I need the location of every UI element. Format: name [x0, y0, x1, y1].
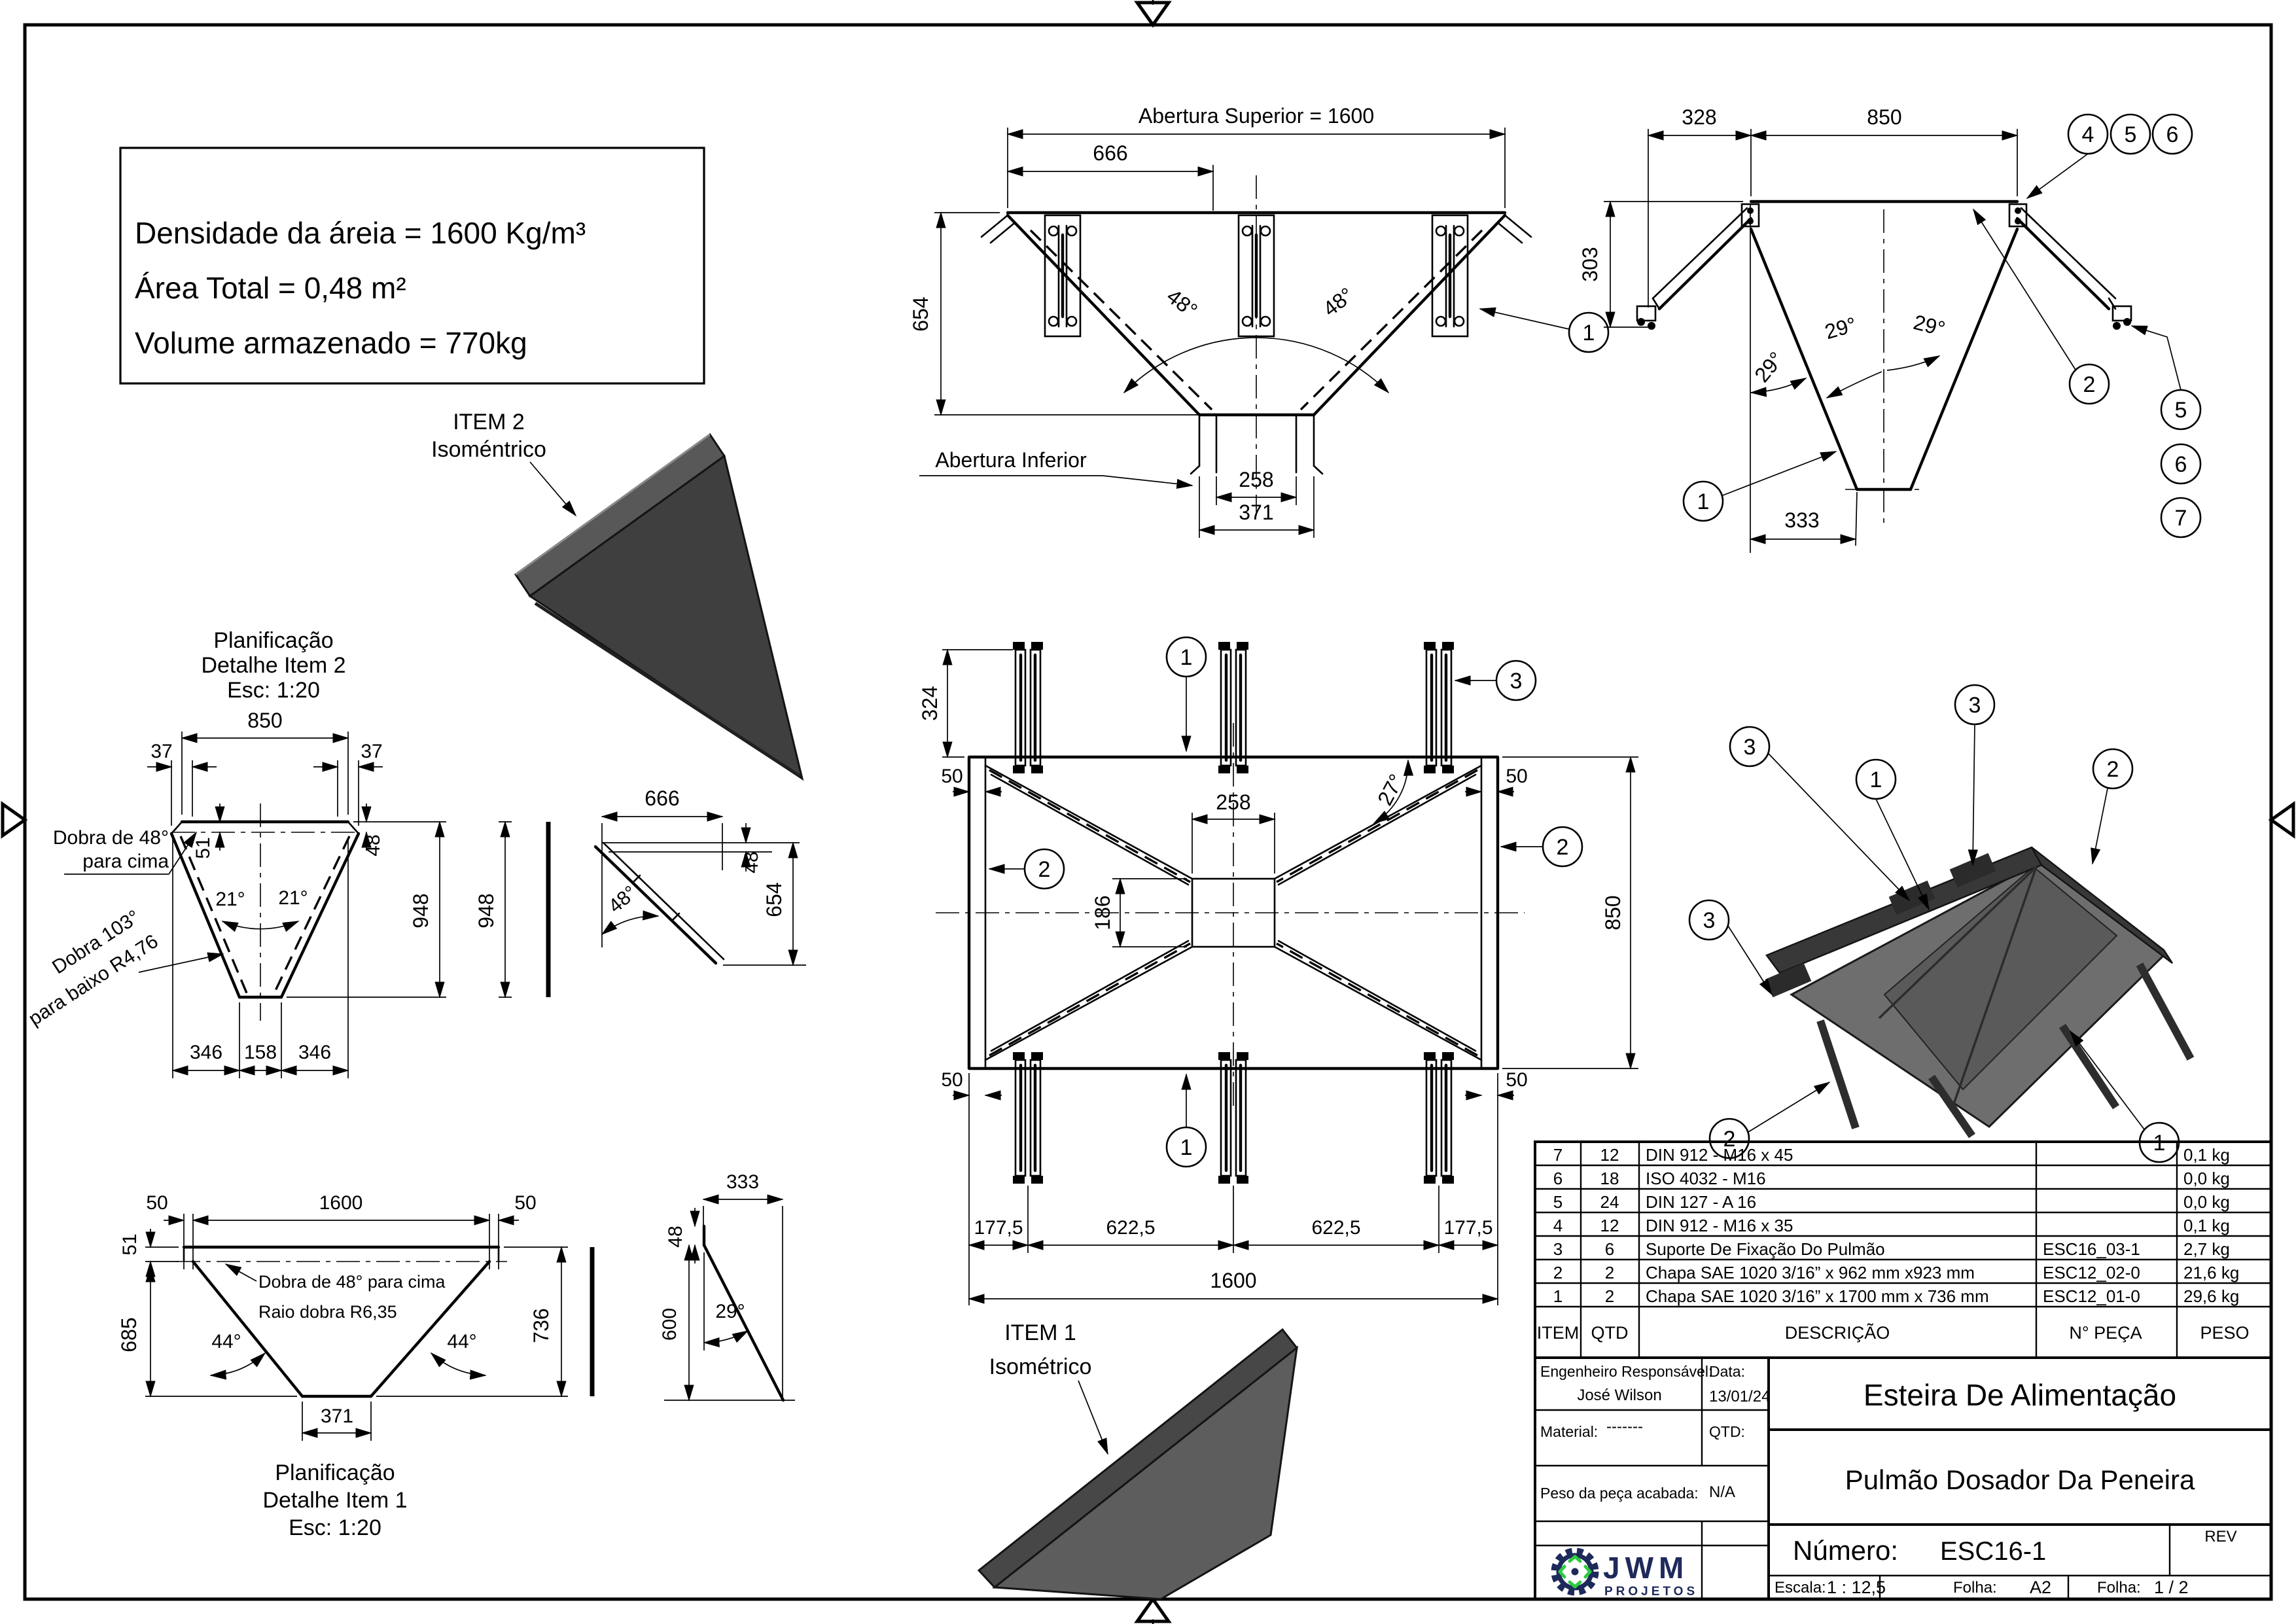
bom-r0-qtd: 12 [1600, 1145, 1619, 1165]
svg-text:2: 2 [2083, 372, 2096, 397]
flat1-dim-50r: 50 [514, 1192, 536, 1214]
svg-text:4: 4 [2082, 122, 2094, 147]
flat1-dim-1600: 1600 [319, 1192, 363, 1214]
bom-r6-item: 1 [1553, 1286, 1563, 1306]
drawing-sheet: Densidade da áreia = 1600 Kg/m³ Área Tot… [0, 0, 2296, 1624]
bom-r5-num: ESC12_02-0 [2043, 1263, 2140, 1282]
label-abertura-inferior: Abertura Inferior [935, 448, 1087, 472]
side-view: 328 850 303 29° 29° 29° 4 5 6 1 2 5 6 7 … [1578, 105, 2200, 553]
iso2-label-2: Isoméntrico [431, 437, 546, 462]
balloon-plan-left-2: 2 [989, 849, 1064, 889]
balloon-side-5: 5 [2111, 115, 2150, 154]
tb-scale-label: Escala: [1775, 1579, 1826, 1597]
flat1-dim-371: 371 [321, 1405, 353, 1427]
tb-weight-value: N/A [1709, 1483, 1735, 1501]
info-box: Densidade da áreia = 1600 Kg/m³ Área Tot… [120, 148, 704, 383]
bom-r3-desc: DIN 912 - M16 x 35 [1646, 1216, 1793, 1235]
angle-48-right: 48° [1318, 283, 1358, 321]
bom-r6-desc: Chapa SAE 1020 3/16” x 1700 mm x 736 mm [1646, 1286, 1989, 1306]
plan-view: 324 50 50 50 50 258 186 27° 850 177,5 62… [918, 637, 1638, 1305]
flat2-dim-37l: 37 [150, 741, 172, 762]
balloon-side-4: 4 [2027, 115, 2108, 198]
iso1-label-2: Isométrico [989, 1354, 1092, 1379]
flat1-note-2: Raio dobra R6,35 [258, 1302, 397, 1322]
dim-850-plan: 850 [1601, 895, 1625, 930]
prof1-dim-600: 600 [659, 1308, 680, 1341]
logo-name: JWM [1603, 1551, 1689, 1585]
bom-r0-desc: DIN 912 - M16 x 45 [1646, 1145, 1793, 1165]
tb-project-title: Esteira De Alimentação [1863, 1378, 2176, 1412]
bom-r2-item: 5 [1553, 1192, 1563, 1212]
bom-r1-desc: ISO 4032 - M16 [1646, 1169, 1766, 1188]
dim-666: 666 [1093, 141, 1127, 165]
tb-qtd-label: QTD: [1709, 1423, 1745, 1440]
tb-sheet-num-value: 1 / 2 [2154, 1578, 2189, 1597]
svg-text:5: 5 [2175, 398, 2187, 423]
bom-r1-item: 6 [1553, 1169, 1563, 1188]
prof1-dim-48: 48 [665, 1226, 686, 1247]
dim-1600-plan: 1600 [1210, 1269, 1256, 1292]
bom-r4-item: 3 [1553, 1239, 1563, 1259]
flat1-dim-736: 736 [529, 1308, 553, 1343]
tb-sheet-size-value: A2 [2030, 1578, 2051, 1597]
flat1-title-3: Esc: 1:20 [289, 1515, 381, 1540]
profile-item1: 333 48 600 29° [659, 1171, 795, 1400]
bom-r4-peso: 2,7 kg [2183, 1239, 2230, 1259]
flat2-dim-346r: 346 [298, 1042, 331, 1063]
tb-date-label: Data: [1709, 1363, 1745, 1380]
flat1-title-2: Detalhe Item 1 [262, 1488, 407, 1513]
bom-r5-item: 2 [1553, 1263, 1563, 1282]
flat2-title-3: Esc: 1:20 [227, 678, 320, 703]
svg-text:6: 6 [2175, 452, 2187, 477]
svg-text:2: 2 [2107, 757, 2119, 782]
bom-r4-num: ESC16_03-1 [2043, 1239, 2140, 1259]
bom-r4-qtd: 6 [1605, 1239, 1614, 1259]
iso1-label-1: ITEM 1 [1004, 1320, 1076, 1345]
tb-material-label: Material: [1540, 1423, 1598, 1440]
dim-186: 186 [1091, 895, 1114, 930]
svg-text:1: 1 [1583, 321, 1595, 345]
info-area: Área Total = 0,48 m² [135, 271, 406, 305]
bom-r1-qtd: 18 [1600, 1169, 1619, 1188]
flat2-note-up-2: para cima [82, 851, 169, 872]
flat2-note-up-1: Dobra de 48° [53, 827, 169, 849]
flat1-dim-51: 51 [119, 1233, 141, 1255]
svg-text:7: 7 [2175, 506, 2187, 531]
bom-r0-item: 7 [1553, 1145, 1563, 1165]
balloon-chain-7: 7 [2161, 498, 2200, 537]
prof2-dim-666: 666 [645, 786, 679, 810]
logo-subtitle: PROJETOS [1604, 1585, 1698, 1598]
tb-date-value: 13/01/24 [1709, 1388, 1770, 1405]
flat2-title-1: Planificação [213, 628, 333, 653]
flat2-angle-r: 21° [278, 887, 308, 909]
flat2-dim-48: 48 [362, 834, 384, 856]
flat2-dim-37r: 37 [361, 741, 382, 762]
angle-48-left: 48° [1163, 284, 1202, 322]
svg-text:2: 2 [1557, 835, 1569, 860]
tb-sheet-size-label: Folha: [1953, 1579, 1997, 1597]
tb-part-title: Pulmão Dosador Da Peneira [1845, 1464, 2195, 1495]
balloon-asm-3c: 3 [1689, 900, 1772, 995]
bom-r3-peso: 0,1 kg [2183, 1216, 2230, 1235]
balloon-plan-right-2: 2 [1501, 827, 1582, 866]
balloon-plan-3: 3 [1455, 661, 1536, 700]
balloon-side-6: 6 [2153, 115, 2192, 154]
flat1-angle-l: 44° [211, 1331, 241, 1352]
flat1-dim-685: 685 [117, 1317, 141, 1352]
bom-header-peso: PESO [2200, 1323, 2249, 1343]
bom-r5-desc: Chapa SAE 1020 3/16” x 962 mm x923 mm [1646, 1263, 1975, 1282]
tb-weight-label: Peso da peça acabada: [1540, 1485, 1699, 1502]
svg-text:3: 3 [1969, 693, 1981, 718]
prof2-dim-654: 654 [762, 882, 786, 917]
info-volume: Volume armazenado = 770kg [135, 326, 527, 360]
dim-177-l: 177,5 [974, 1217, 1023, 1239]
bom-header-num: N° PEÇA [2069, 1323, 2142, 1343]
flat2-dim-51: 51 [192, 837, 214, 858]
dim-abertura-superior: Abertura Superior = 1600 [1139, 104, 1374, 128]
tb-scale-value: 1 : 12,5 [1827, 1578, 1886, 1597]
flat-item1: 50 1600 50 51 685 736 44° 44° Dobra de 4… [117, 1192, 592, 1540]
tb-number-label: Número: [1793, 1535, 1898, 1566]
dim-622-r: 622,5 [1311, 1217, 1360, 1239]
tb-material-value: ------- [1606, 1418, 1643, 1436]
flat1-angle-r: 44° [447, 1331, 476, 1352]
svg-text:1: 1 [1870, 768, 1882, 792]
bom-r5-qtd: 2 [1605, 1263, 1614, 1282]
dim-303: 303 [1578, 247, 1602, 281]
dim-324: 324 [918, 686, 942, 720]
balloon-plan-top-1: 1 [1167, 637, 1206, 751]
svg-text:3: 3 [1510, 669, 1523, 694]
prof1-angle: 29° [715, 1301, 745, 1322]
bom-r2-peso: 0,0 kg [2183, 1192, 2230, 1212]
svg-text:2: 2 [1038, 857, 1051, 882]
angle-27: 27° [1373, 770, 1409, 809]
balloon-side-2: 2 [1973, 209, 2109, 404]
iso-item1: ITEM 1 Isométrico [979, 1320, 1297, 1599]
dim-654: 654 [909, 296, 932, 331]
cad-canvas: Densidade da áreia = 1600 Kg/m³ Área Tot… [0, 0, 2296, 1624]
prof1-dim-333: 333 [726, 1171, 759, 1193]
dim-850-side: 850 [1867, 105, 1901, 129]
angle-29-a: 29° [1750, 347, 1788, 387]
front-view: Abertura Superior = 1600 666 654 48° 48°… [909, 104, 1608, 538]
flat2-dim-158: 158 [244, 1042, 277, 1063]
dim-333-side: 333 [1784, 508, 1819, 532]
bom-r1-peso: 0,0 kg [2183, 1169, 2230, 1188]
flat2-title-2: Detalhe Item 2 [201, 653, 345, 678]
bom-r2-qtd: 24 [1600, 1192, 1619, 1212]
flat2-dim-850: 850 [247, 709, 282, 732]
bom-r6-num: ESC12_01-0 [2043, 1286, 2140, 1306]
flat2-dim-948a: 948 [409, 893, 433, 928]
info-density: Densidade da áreia = 1600 Kg/m³ [135, 216, 586, 250]
iso-assembly: 3 3 1 2 3 2 1 [1689, 685, 2191, 1162]
flat1-title-1: Planificação [275, 1460, 395, 1485]
dim-328: 328 [1682, 105, 1716, 129]
angle-29-c: 29° [1911, 310, 1948, 341]
svg-text:1: 1 [1180, 645, 1193, 670]
flat-item2: Planificação Detalhe Item 2 Esc: 1:20 85… [25, 628, 548, 1078]
flat2-dim-346l: 346 [190, 1042, 222, 1063]
svg-text:5: 5 [2125, 122, 2137, 147]
flat2-dim-948b: 948 [474, 893, 498, 928]
balloon-plan-bottom-1: 1 [1167, 1074, 1206, 1167]
bom-r4-desc: Suporte De Fixação Do Pulmão [1646, 1239, 1885, 1259]
bom-r6-qtd: 2 [1605, 1286, 1614, 1306]
dim-50-tr: 50 [1506, 766, 1527, 787]
bom-header-item: ITEM [1537, 1323, 1580, 1343]
svg-text:1: 1 [1180, 1135, 1193, 1160]
dim-177-r: 177,5 [1443, 1217, 1492, 1239]
svg-text:1: 1 [1697, 489, 1710, 514]
dim-622-l: 622,5 [1106, 1217, 1155, 1239]
tb-engineer-label: Engenheiro Responsável: [1540, 1363, 1712, 1380]
balloon-chain-6: 6 [2161, 444, 2200, 484]
gear-icon [1555, 1552, 1595, 1591]
dim-50-tl: 50 [941, 766, 963, 787]
angle-29-b: 29° [1822, 312, 1859, 344]
iso-item2: ITEM 2 Isoméntrico [431, 410, 802, 779]
bom-r5-peso: 21,6 kg [2183, 1263, 2239, 1282]
balloon-chain-5: 5 [2132, 326, 2200, 429]
bom-r3-qtd: 12 [1600, 1216, 1619, 1235]
flat2-angle-l: 21° [215, 889, 245, 910]
bom-header-qtd: QTD [1591, 1323, 1629, 1343]
profile-item2: 666 48 654 48° [595, 786, 806, 965]
bom-r3-item: 4 [1553, 1216, 1563, 1235]
balloon-asm-2a: 2 [2093, 749, 2132, 864]
prof2-dim-48: 48 [741, 851, 762, 873]
tb-sheet-num-label: Folha: [2097, 1579, 2141, 1597]
bom-table: 7 12 DIN 912 - M16 x 45 0,1 kg 6 18 ISO … [1535, 1142, 2271, 1358]
dim-371: 371 [1239, 501, 1273, 524]
balloon-asm-1a: 1 [1856, 760, 1929, 909]
bom-r6-peso: 29,6 kg [2183, 1286, 2239, 1306]
svg-text:6: 6 [2166, 122, 2179, 147]
tb-engineer-name: José Wilson [1577, 1386, 1661, 1404]
dim-50-br: 50 [1506, 1069, 1527, 1091]
tb-number-value: ESC16-1 [1940, 1537, 2046, 1566]
svg-text:3: 3 [1703, 908, 1716, 933]
flat1-dim-50l: 50 [146, 1192, 168, 1214]
company-logo: JWM PROJETOS [1555, 1551, 1698, 1598]
svg-text:3: 3 [1744, 735, 1756, 760]
flat1-note-1: Dobra de 48° para cima [258, 1272, 446, 1292]
dim-258-plan: 258 [1216, 790, 1250, 814]
iso2-label-1: ITEM 2 [453, 410, 525, 434]
dim-258: 258 [1239, 468, 1273, 491]
tb-rev-label: REV [2204, 1528, 2236, 1545]
bom-r2-desc: DIN 127 - A 16 [1646, 1192, 1756, 1212]
dim-50-bl: 50 [941, 1069, 963, 1091]
balloon-asm-3b: 3 [1955, 685, 1994, 865]
bom-r0-peso: 0,1 kg [2183, 1145, 2230, 1165]
balloon-front-1: 1 [1480, 309, 1608, 352]
bom-header-desc: DESCRIÇÃO [1785, 1322, 1890, 1343]
